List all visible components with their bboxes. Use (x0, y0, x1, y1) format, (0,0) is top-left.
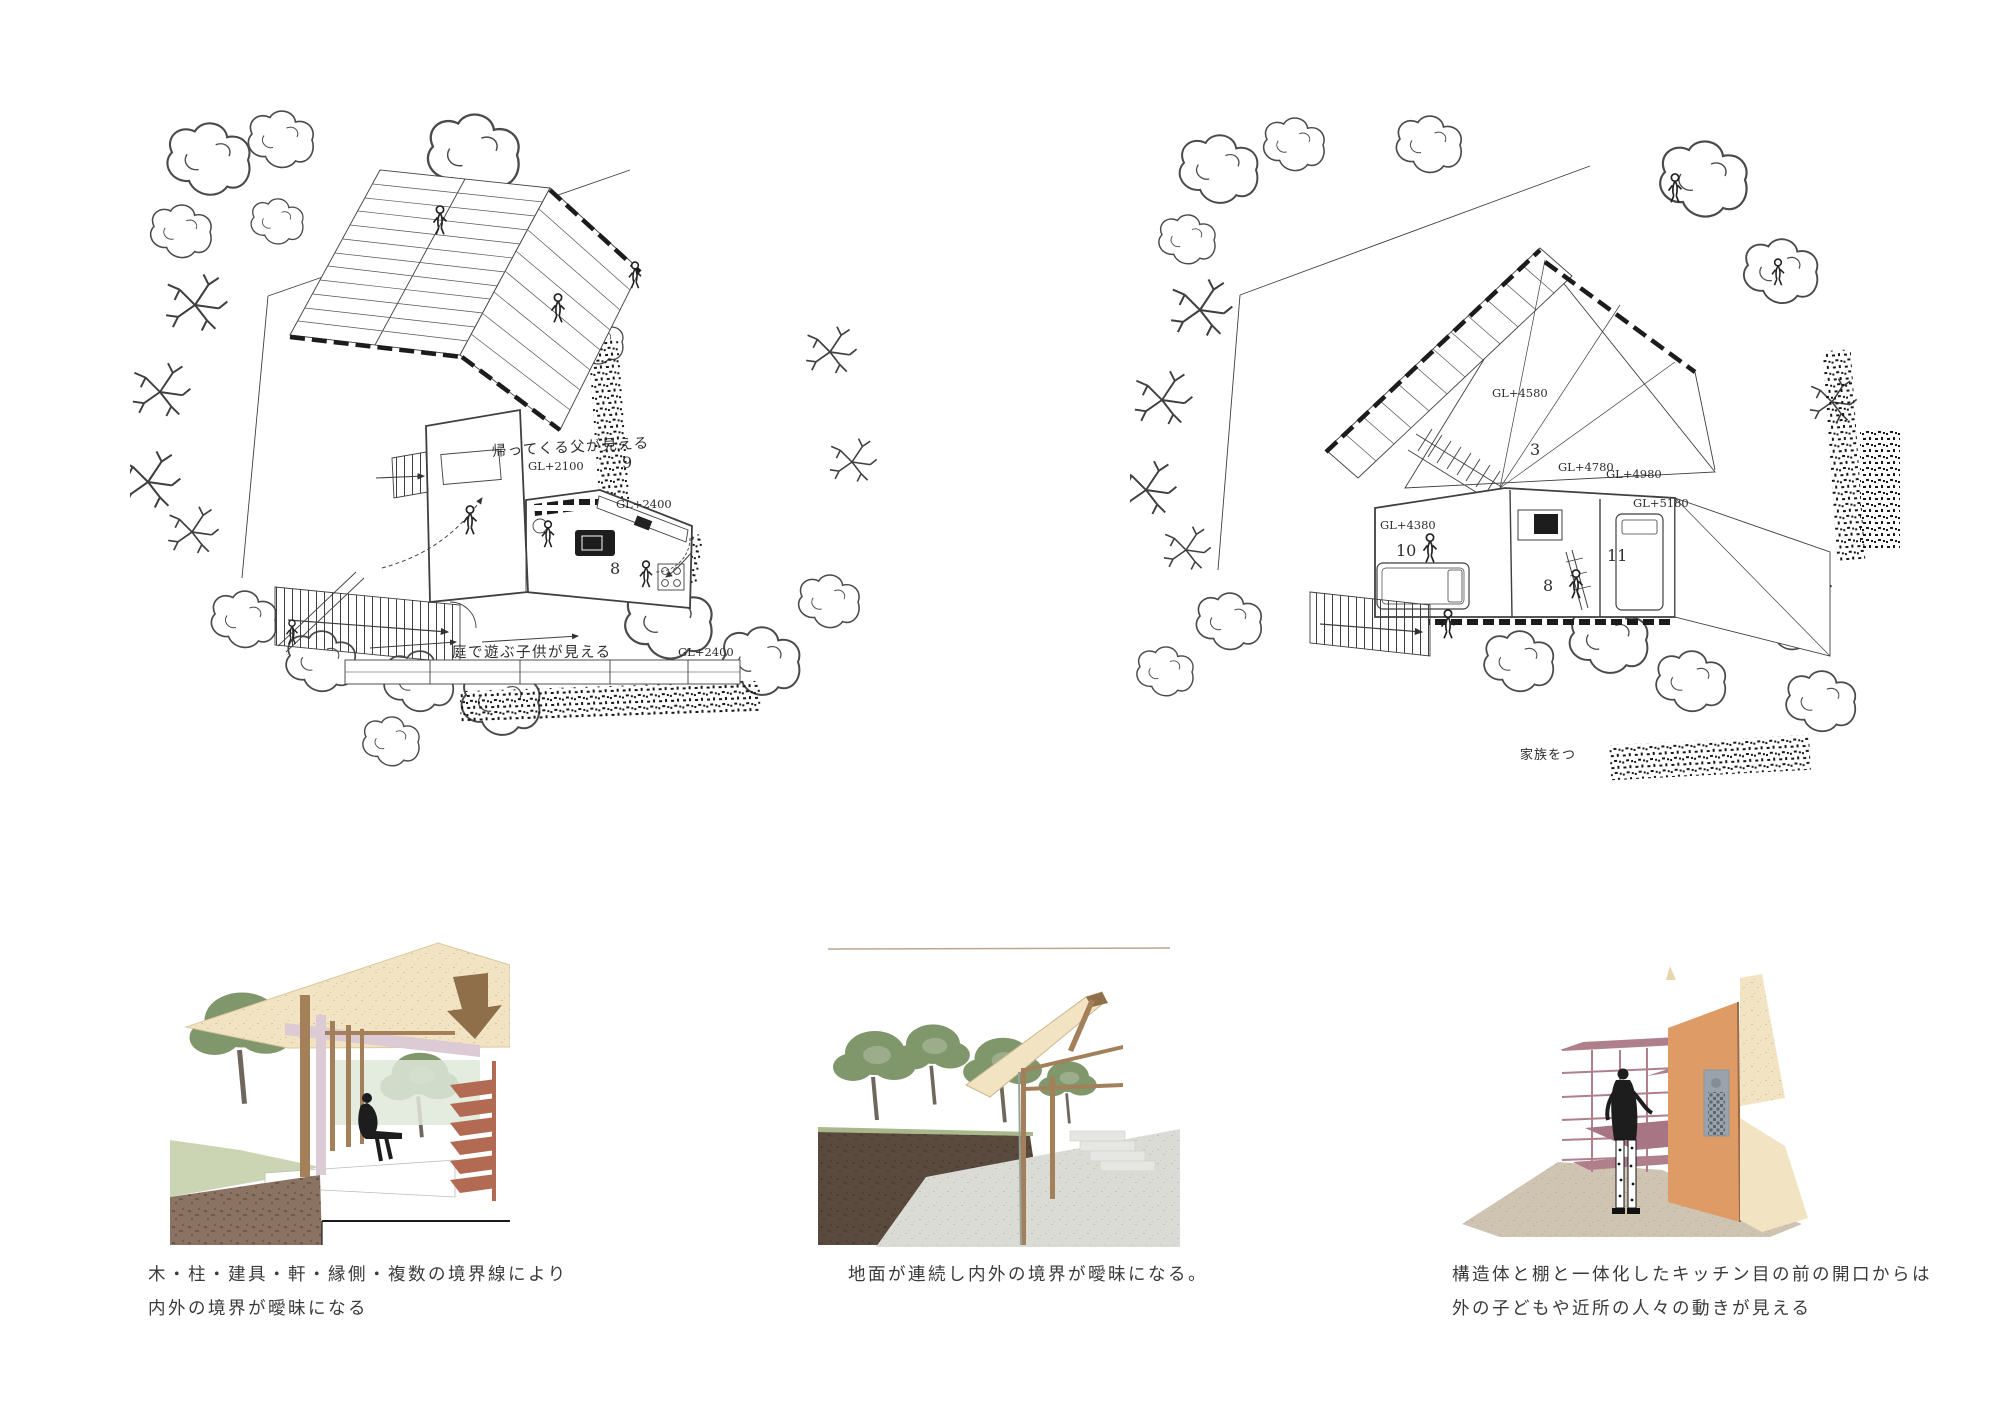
label-gl4380: GL+4380 (1380, 518, 1436, 532)
low-table (575, 530, 615, 556)
illustration-kitchen (1440, 950, 1864, 1250)
window-figure-head (1711, 1078, 1721, 1088)
site-plan-left: 帰ってくる父が見える GL+2100 9 GL+2400 8 庭で遊ぶ子供が見え… (130, 100, 910, 870)
label-garden-children: 庭で遊ぶ子供が見える (452, 644, 612, 661)
top-rule (828, 948, 1170, 949)
label-room10: 10 (1396, 541, 1416, 560)
illustration-engawa-drawing (170, 935, 510, 1245)
south-wall-band (1428, 619, 1675, 631)
label-gl2100: GL+2100 (528, 459, 584, 473)
illustration-engawa (170, 935, 510, 1245)
site-plan-right-drawing: GL+4580 3 GL+4780 GL+4980 GL+5180 GL+438… (1130, 100, 1910, 870)
engawa-west (392, 452, 428, 498)
window (1704, 1070, 1729, 1136)
terrace (1675, 498, 1830, 656)
label-room9: 9 (622, 453, 632, 472)
label-gl4580: GL+4580 (1492, 386, 1548, 400)
roof-planes (1326, 248, 1715, 488)
label-gl5180: GL+5180 (1633, 496, 1689, 510)
caption-ground: 地面が連続し内外の境界が曖昧になる。 (848, 1258, 1208, 1292)
label-room3: 3 (1530, 440, 1540, 459)
presentation-board: 帰ってくる父が見える GL+2100 9 GL+2400 8 庭で遊ぶ子供が見え… (0, 0, 2000, 1414)
caption-kitchen-line2: 外の子どもや近所の人々の動きが見える (1452, 1292, 1932, 1326)
label-gl2400-upper: GL+2400 (616, 497, 672, 511)
caption-engawa-line2: 内外の境界が曖昧になる (148, 1292, 568, 1326)
caption-kitchen-line1: 構造体と棚と一体化したキッチン目の前の開口からは (1452, 1258, 1932, 1292)
washbasin (1534, 514, 1558, 534)
label-gl4980: GL+4980 (1606, 467, 1662, 481)
label-room8: 8 (1543, 576, 1553, 595)
site-plan-right: GL+4580 3 GL+4780 GL+4980 GL+5180 GL+438… (1130, 100, 1910, 870)
caption-ground-line1: 地面が連続し内外の境界が曖昧になる。 (848, 1258, 1208, 1292)
roof-planes (290, 170, 640, 430)
illustration-ground (818, 935, 1180, 1247)
site-plan-left-drawing: 帰ってくる父が見える GL+2100 9 GL+2400 8 庭で遊ぶ子供が見え… (130, 100, 910, 870)
label-room11: 11 (1607, 546, 1627, 565)
illustration-kitchen-drawing (1440, 950, 1864, 1250)
label-room8: 8 (610, 559, 620, 578)
window-figure-body (1708, 1092, 1725, 1136)
label-family-fragment: 家族をつ (1520, 747, 1576, 763)
illustration-ground-drawing (818, 935, 1180, 1247)
label-gl2400-lower: GL+2400 (678, 645, 734, 659)
caption-engawa-line1: 木・柱・建具・軒・縁側・複数の境界線により (148, 1258, 568, 1292)
caption-kitchen: 構造体と棚と一体化したキッチン目の前の開口からは 外の子どもや近所の人々の動きが… (1452, 1258, 1932, 1326)
leg-right (1628, 1140, 1636, 1208)
caption-engawa: 木・柱・建具・軒・縁側・複数の境界線により 内外の境界が曖昧になる (148, 1258, 568, 1326)
